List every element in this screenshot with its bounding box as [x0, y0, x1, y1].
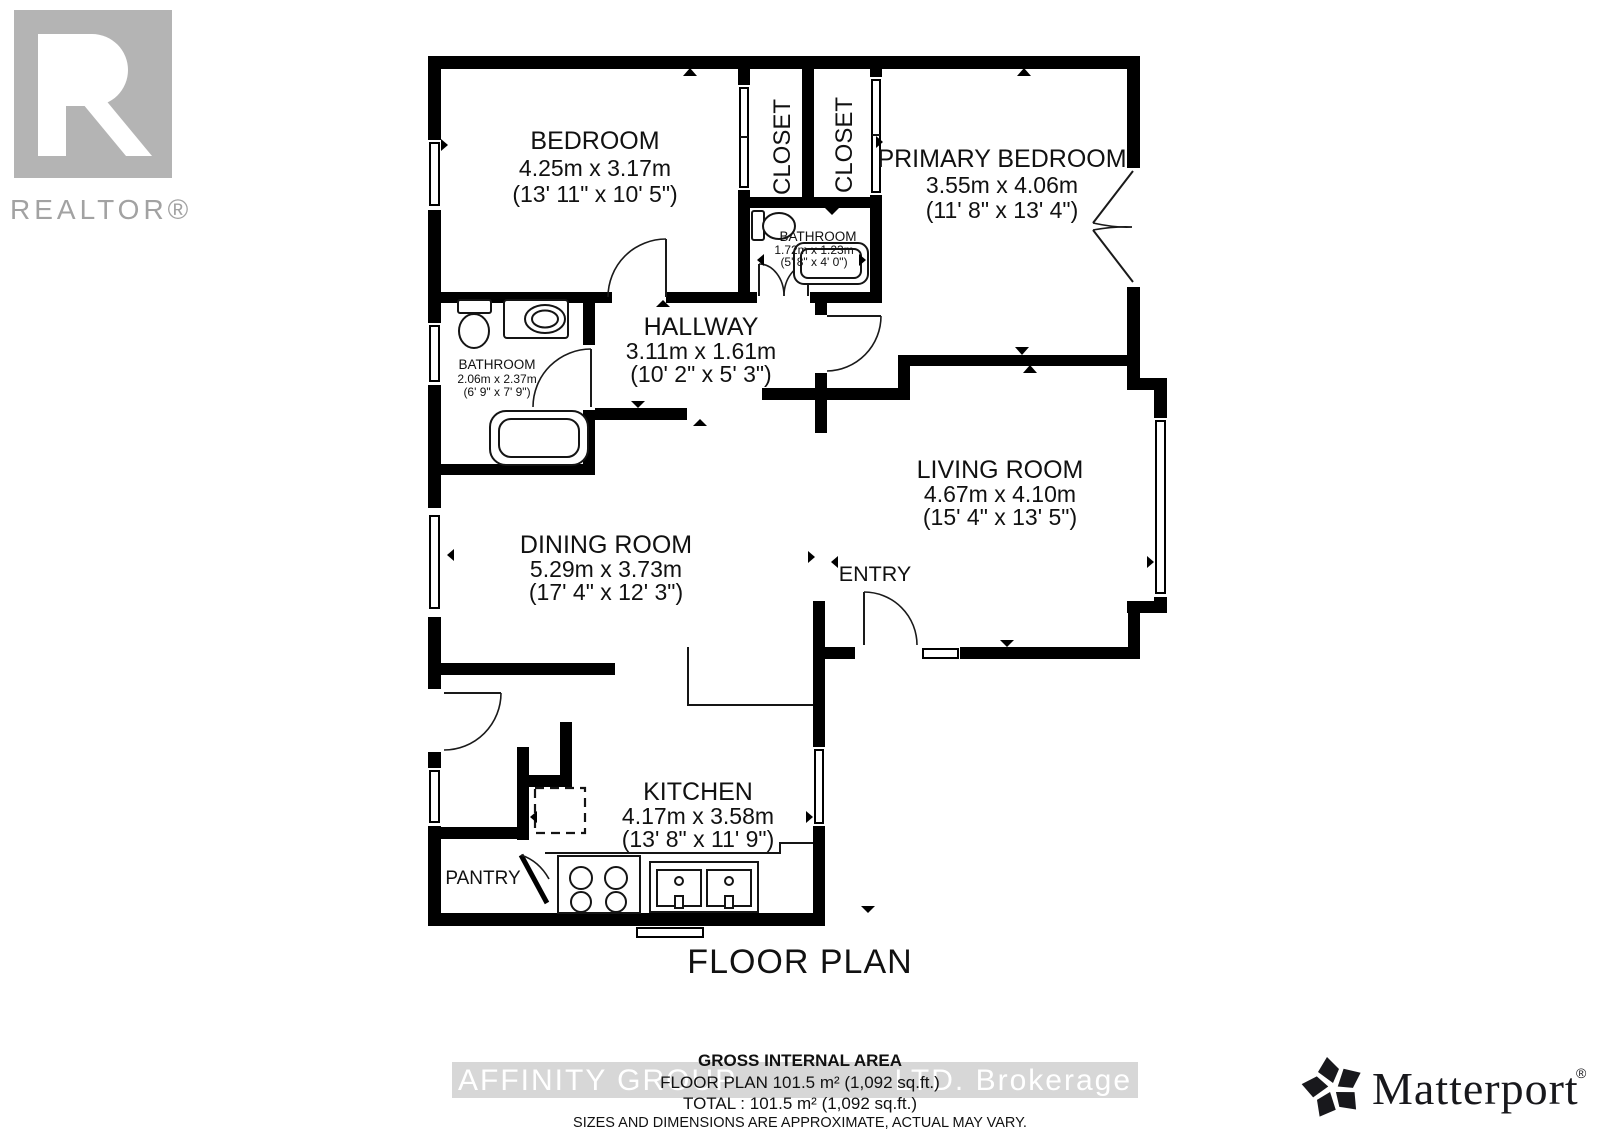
main-bathroom-dim-m: 2.06m x 2.37m	[457, 372, 536, 386]
main-bathroom-label: BATHROOM	[459, 357, 536, 372]
matterport-wordmark: Matterport	[1372, 1063, 1579, 1114]
hallway-dim-ft: (10' 2" x 5' 3")	[630, 361, 771, 387]
bedroom-door	[608, 239, 666, 297]
main-bathroom-toilet	[458, 300, 491, 348]
ensuite-label: BATHROOM	[780, 229, 857, 244]
realtor-wordmark: REALTOR®	[10, 194, 192, 225]
entry-label: ENTRY	[839, 562, 911, 586]
summary-floor-plan-line: FLOOR PLAN 101.5 m² (1,092 sq.ft.)	[660, 1073, 940, 1092]
main-bathroom-door	[533, 349, 591, 407]
pantry-label: PANTRY	[445, 868, 521, 889]
main-bathroom-tub	[490, 411, 588, 465]
hallway-label: HALLWAY	[644, 313, 759, 341]
kitchen-peninsula-counter	[688, 647, 813, 705]
pantry-door	[521, 855, 549, 903]
bedroom-window	[430, 143, 439, 205]
dining-room-dim-ft: (17' 4" x 12' 3")	[529, 579, 683, 605]
closet-2-label: CLOSET	[831, 97, 858, 193]
floor-plan-canvas: REALTOR®	[0, 0, 1600, 1132]
kitchen-appliance-dashed	[535, 788, 585, 833]
living-room-dim-ft: (15' 4" x 13' 5")	[923, 504, 1077, 530]
primary-bedroom-door	[827, 316, 881, 371]
dining-room-label: DINING ROOM	[520, 531, 692, 559]
summary-heading: GROSS INTERNAL AREA	[698, 1051, 902, 1070]
kitchen-stove	[558, 856, 640, 913]
bathroom-window	[430, 326, 439, 381]
ensuite-dim-ft: (5' 8" x 4' 0")	[780, 255, 847, 269]
floor-plan-title: FLOOR PLAN	[687, 943, 912, 981]
realtor-r-stem	[38, 34, 66, 156]
matterport-reg-mark: ®	[1576, 1065, 1587, 1081]
closet-1-label: CLOSET	[769, 99, 796, 195]
kitchen-label: KITCHEN	[643, 778, 753, 806]
primary-bedroom-label: PRIMARY BEDROOM	[877, 145, 1126, 173]
primary-french-doors	[1093, 171, 1133, 282]
living-room-window	[1156, 421, 1165, 593]
bedroom-dim-ft: (13' 11" x 10' 5")	[512, 181, 677, 207]
matterport-icon	[1299, 1057, 1364, 1122]
main-bathroom-dim-ft: (6' 9" x 7' 9")	[463, 385, 530, 399]
kitchen-double-sink	[650, 862, 758, 912]
kitchen-right-window	[815, 750, 823, 823]
kitchen-dim-ft: (13' 8" x 11' 9")	[622, 826, 775, 852]
main-bathroom-sink	[504, 300, 568, 338]
bedroom-label: BEDROOM	[530, 127, 659, 155]
summary-disclaimer: SIZES AND DIMENSIONS ARE APPROXIMATE, AC…	[573, 1115, 1027, 1131]
entry-sidelite-window	[923, 649, 958, 658]
summary-total-line: TOTAL : 101.5 m² (1,092 sq.ft.)	[683, 1094, 917, 1113]
bedroom-dim-m: 4.25m x 3.17m	[519, 155, 671, 181]
dining-window	[430, 516, 439, 608]
matterport-logo: Matterport ®	[1299, 1057, 1587, 1122]
primary-bedroom-dim-m: 3.55m x 4.06m	[926, 172, 1078, 198]
living-room-label: LIVING ROOM	[917, 456, 1084, 484]
realtor-logo: REALTOR®	[10, 10, 192, 225]
kitchen-left-window	[430, 771, 439, 822]
entry-door	[864, 592, 917, 645]
primary-bedroom-dim-ft: (11' 8" x 13' 4")	[926, 197, 1079, 223]
side-entry-door	[444, 693, 501, 750]
floor-plan-page: REALTOR®	[0, 0, 1600, 1132]
kitchen-sink-window	[637, 928, 703, 937]
